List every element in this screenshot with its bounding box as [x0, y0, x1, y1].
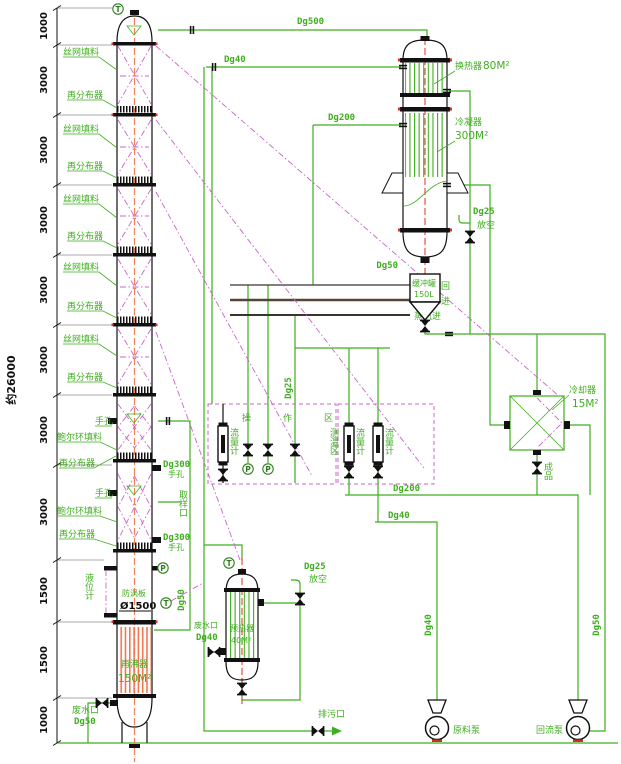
heater-area-label: 80M² — [483, 60, 510, 72]
flow-meter-label: 流量计 — [228, 427, 239, 456]
redistributor-label: 再分布器 — [59, 457, 95, 469]
total-height-label: 约26000 — [4, 355, 18, 405]
dg500-label: Dg500 — [297, 17, 324, 27]
reboiler-label: 再沸器 — [121, 658, 148, 670]
buffer-outlet-valve — [420, 320, 430, 333]
mesh-packing-label: 丝网填料 — [63, 46, 99, 58]
redistributor-label: 再分布器 — [59, 528, 95, 540]
waste-nozzle — [110, 700, 118, 706]
handhole-dg300-label: Dg300 — [163, 533, 190, 543]
flow-meter-label: 流量计 — [383, 427, 394, 456]
dim-label: 1000 — [39, 706, 50, 734]
flow-meter-label: 流量计 — [354, 427, 365, 456]
buffer-tank-volume: 150L — [414, 290, 434, 299]
vent-valve — [465, 231, 475, 244]
pid-drawing: 1000 3000 3000 3000 3000 3000 3000 3000 … — [0, 0, 621, 764]
handhole-label: 手孔 — [95, 487, 113, 499]
dim-label: 3000 — [39, 276, 50, 304]
pall-packing-label: 鲍尔环填料 — [57, 505, 102, 517]
preheater-bottom-valve — [237, 683, 247, 696]
condenser-outlet-dg-label: Dg50 — [376, 261, 398, 271]
dg25-label-2: Dg25 — [304, 562, 326, 572]
reflux-pump-label: 回流泵 — [536, 724, 563, 736]
handhole-label: 手孔 — [168, 469, 184, 479]
level-gauge — [104, 566, 117, 618]
redistributor-label: 再分布器 — [67, 371, 103, 383]
distillation-column: P T T — [104, 4, 171, 762]
temperature-indicator-top-letter: T — [115, 5, 121, 14]
drain-valve — [312, 726, 325, 736]
dim-label: 3000 — [39, 66, 50, 94]
handhole-label: 手孔 — [168, 542, 184, 552]
pressure-indicator-letter: P — [160, 564, 166, 573]
dg40-label: Dg40 — [224, 55, 246, 65]
waste-port-label: 废水口 — [72, 704, 99, 716]
product-label: 成品 — [542, 461, 553, 481]
flow-meter-3 — [373, 423, 383, 466]
mesh-packing-label: 丝网填料 — [63, 123, 99, 135]
dim-label: 1500 — [39, 577, 50, 605]
preheater-temp-letter: T — [226, 559, 232, 568]
cooler-area-label: 15M² — [572, 398, 599, 410]
dim-label: 1000 — [39, 12, 50, 40]
handhole-dg300-label: Dg300 — [163, 460, 190, 470]
mesh-packing-label: 丝网填料 — [63, 333, 99, 345]
column-top-nozzle — [130, 10, 139, 15]
condenser-area-label: 300M² — [455, 130, 488, 142]
vent-label: 放空 — [477, 219, 495, 231]
dg25-label: Dg25 — [473, 207, 495, 217]
feed-pump-symbol — [426, 700, 449, 742]
dg25-riser-label: Dg25 — [284, 377, 294, 399]
redistributor-label: 再分布器 — [67, 300, 103, 312]
column-diameter-label: Ø1500 — [120, 600, 156, 612]
feed-pump-label: 原料泵 — [453, 724, 480, 736]
reflux-pump-symbol — [567, 700, 590, 742]
buffer-tank-label: 缓冲罐 — [412, 278, 436, 288]
dg200-header-label: Dg200 — [393, 484, 420, 494]
redistributor-label: 再分布器 — [67, 230, 103, 242]
preheater-label: 预热器 — [230, 623, 254, 633]
drain-arrow — [332, 727, 342, 736]
heater-tubes — [405, 63, 445, 93]
vortex-plate-label: 防涡板 — [122, 588, 146, 598]
mesh-packing-label: 丝网填料 — [63, 193, 99, 205]
redistributor-label: 再分布器 — [67, 89, 103, 101]
mesh-packing-label: 丝网填料 — [63, 261, 99, 273]
condenser-tubes — [405, 113, 445, 177]
preheater-area-label: 40M² — [231, 636, 251, 645]
pressure-gauge-letter: P — [265, 465, 271, 474]
operation-zone: 操作区 测温区 流量计 流量计 流量计 P P — [208, 404, 434, 484]
cooler-label: 冷却器 — [569, 384, 596, 396]
flow-meter-2 — [344, 423, 354, 466]
dg40-header-label: Dg40 — [388, 511, 410, 521]
dim-label: 3000 — [39, 416, 50, 444]
dim-label: 3000 — [39, 346, 50, 374]
pumps: 原料泵 回流泵 排污口 — [96, 698, 590, 742]
drain-label: 排污口 — [318, 708, 345, 720]
dg40-riser-label: Dg40 — [424, 614, 434, 636]
dim-label: 1500 — [39, 646, 50, 674]
level-gauge-label: 液位计 — [83, 572, 94, 601]
handhole-dg300-nozzle — [152, 465, 161, 471]
buffer-tank: 缓冲罐 150L — [410, 274, 440, 332]
dim-label: 3000 — [39, 206, 50, 234]
product-cooler: 冷却器 15M² 成品 — [504, 384, 599, 481]
dim-label: 3000 — [39, 136, 50, 164]
pipe-labels: Dg500 Dg40 Dg200 Dg25 放空 Dg25 放空 Dg200 D… — [177, 17, 602, 636]
flow-meter-1 — [218, 423, 228, 466]
redistributor-label: 再分布器 — [67, 160, 103, 172]
handhole-label: 手孔 — [95, 415, 113, 427]
waste-dg-label: Dg50 — [74, 717, 96, 727]
temperature-zone-label: 测温区 — [328, 428, 339, 455]
condenser-label: 冷凝器 — [455, 116, 482, 128]
dg200-label: Dg200 — [328, 113, 355, 123]
vent-label-2: 放空 — [309, 573, 327, 585]
heater-label: 换热器 — [455, 60, 482, 72]
reference-lines — [156, 46, 560, 601]
vent-valve-2 — [295, 593, 305, 606]
handhole-dg300-nozzle — [152, 537, 161, 543]
pall-packing-label: 鲍尔环填料 — [57, 431, 102, 443]
preheater-waste-label: 废水口 — [194, 620, 218, 630]
dg50-riser-label: Dg50 — [177, 589, 187, 611]
sample-port-label: 取样口 — [177, 490, 188, 517]
dim-label: 3000 — [39, 498, 50, 526]
pressure-gauge-letter: P — [245, 465, 251, 474]
dg50-right-label: Dg50 — [592, 614, 602, 636]
preheater-waste-dg: Dg40 — [196, 633, 218, 643]
reboiler-area-label: 150M² — [118, 673, 151, 685]
temperature-indicator-letter: T — [163, 599, 169, 608]
product-valve — [532, 462, 542, 475]
waste-valve — [96, 698, 109, 708]
operation-zone-label: 操作区 — [242, 412, 365, 424]
preheater-waste-valve — [208, 647, 221, 657]
